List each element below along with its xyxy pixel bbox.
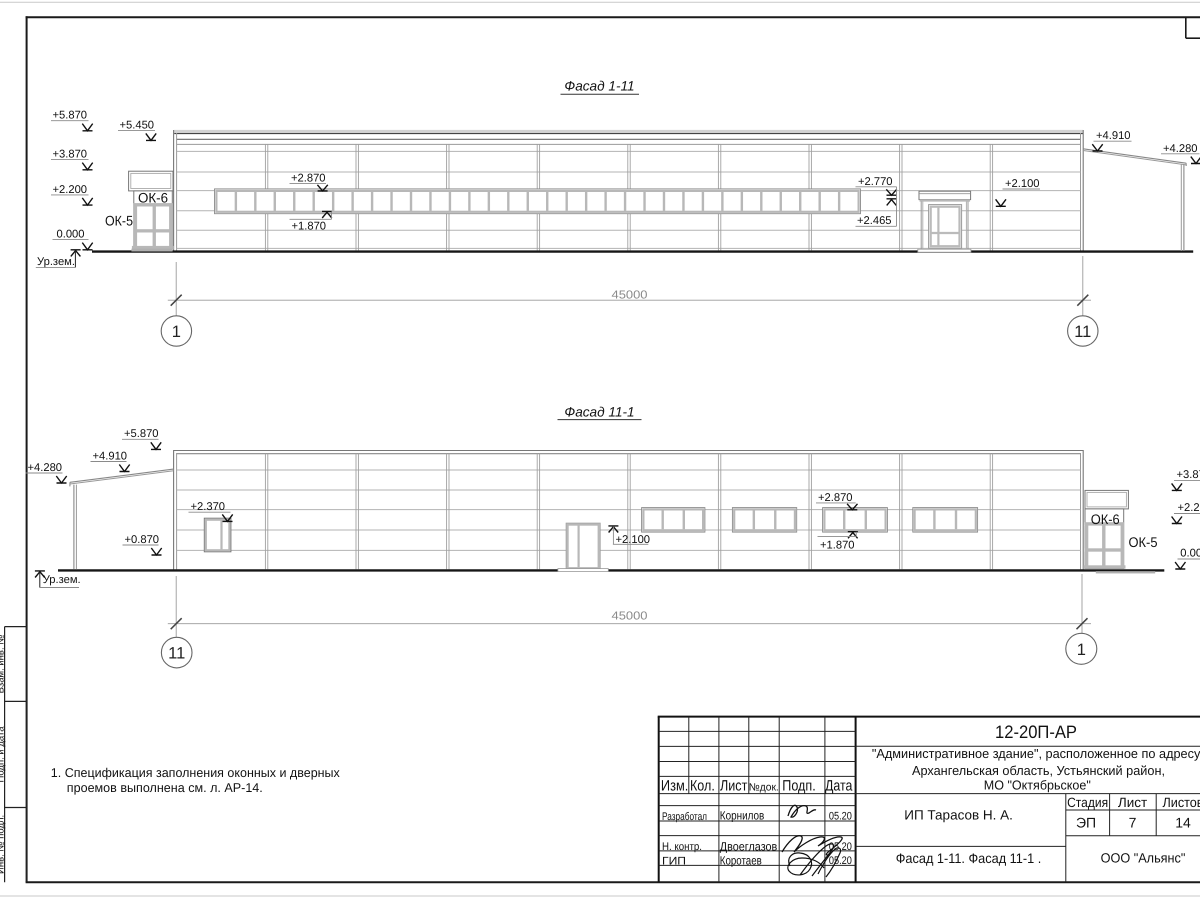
svg-text:+2.870: +2.870 [291,172,326,184]
svg-text:Н. контр.: Н. контр. [662,841,702,853]
svg-text:+4.280: +4.280 [1163,143,1198,155]
svg-text:Архангельская область, Устьянс: Архангельская область, Устьянский район, [912,763,1165,778]
svg-text:+0.870: +0.870 [125,534,160,546]
svg-text:Ур.зем.: Ур.зем. [43,574,81,586]
svg-text:45000: 45000 [612,609,649,622]
svg-text:+2.870: +2.870 [818,492,853,504]
svg-text:1: 1 [1077,641,1086,659]
svg-text:+2.200: +2.200 [53,184,88,196]
svg-text:+4.910: +4.910 [93,450,128,462]
svg-text:проемов выполнена см. л. АР-14: проемов выполнена см. л. АР-14. [67,780,263,795]
svg-text:05.20: 05.20 [829,855,852,867]
svg-text:Стадия: Стадия [1067,795,1108,810]
svg-text:Фасад 11-1: Фасад 11-1 [564,404,634,419]
svg-text:Двоеглазов: Двоеглазов [720,839,778,853]
svg-text:Подп.: Подп. [782,777,815,794]
svg-text:№док.: №док. [749,781,779,793]
svg-text:+5.870: +5.870 [124,428,159,440]
svg-text:Изм.: Изм. [661,777,688,794]
svg-text:+5.450: +5.450 [120,119,155,131]
svg-text:7: 7 [1129,814,1137,830]
svg-text:ОК-6: ОК-6 [138,191,168,206]
svg-text:14: 14 [1175,814,1191,830]
svg-text:Подп. и дата: Подп. и дата [0,726,7,783]
svg-text:+1.870: +1.870 [292,220,327,232]
svg-text:Ур.зем.: Ур.зем. [37,256,75,268]
svg-text:Фасад 1-11: Фасад 1-11 [564,78,634,93]
svg-text:Лист: Лист [720,777,747,794]
svg-text:+3.870: +3.870 [53,149,88,161]
svg-text:05.20: 05.20 [829,811,852,823]
svg-text:+4.910: +4.910 [1096,130,1131,142]
svg-text:+2.200: +2.200 [1178,502,1200,514]
svg-text:Лист: Лист [1118,795,1147,810]
svg-text:Разработал: Разработал [662,811,707,823]
svg-text:+4.280: +4.280 [28,462,63,474]
svg-text:Корнилов: Корнилов [720,809,765,823]
svg-text:11: 11 [1074,323,1091,341]
svg-text:МО "Октябрьское": МО "Октябрьское" [984,777,1091,792]
svg-text:+2.770: +2.770 [858,176,893,188]
svg-text:Дата: Дата [825,777,853,794]
svg-text:1. Спецификация заполнения око: 1. Спецификация заполнения оконных и две… [51,765,341,780]
svg-text:Коротаев: Коротаев [720,854,762,868]
svg-text:Взам. инв. №: Взам. инв. № [0,635,7,694]
svg-text:11: 11 [168,645,185,663]
svg-text:ОК-5: ОК-5 [1129,534,1158,550]
svg-text:Инв. № подл.: Инв. № подл. [0,815,7,874]
svg-text:ГИП: ГИП [662,855,686,867]
svg-text:+5.870: +5.870 [53,110,88,122]
svg-text:ИП Тарасов Н. А.: ИП Тарасов Н. А. [904,808,1013,823]
svg-text:45000: 45000 [612,289,649,302]
svg-text:+2.100: +2.100 [1005,178,1040,190]
svg-text:ООО "Альянс": ООО "Альянс" [1101,850,1186,865]
svg-text:"Административное здание", рас: "Административное здание", расположенное… [872,746,1200,761]
svg-text:Листов: Листов [1163,795,1200,810]
svg-text:Кол.: Кол. [690,777,715,794]
svg-text:Фасад 1-11. Фасад 11-1 .: Фасад 1-11. Фасад 11-1 . [896,851,1042,866]
svg-text:ОК-6: ОК-6 [1091,512,1120,527]
svg-text:0.000: 0.000 [57,229,85,241]
svg-text:+1.870: +1.870 [820,539,855,551]
svg-text:+2.370: +2.370 [191,501,226,513]
svg-text:0.000: 0.000 [1180,547,1200,559]
svg-text:1: 1 [172,323,181,341]
svg-text:ОК-5: ОК-5 [105,213,133,229]
svg-text:+3.870: +3.870 [1177,469,1200,481]
svg-text:ЭП: ЭП [1076,814,1096,830]
svg-text:12-20П-АР: 12-20П-АР [995,722,1077,742]
svg-text:+2.465: +2.465 [857,215,892,227]
